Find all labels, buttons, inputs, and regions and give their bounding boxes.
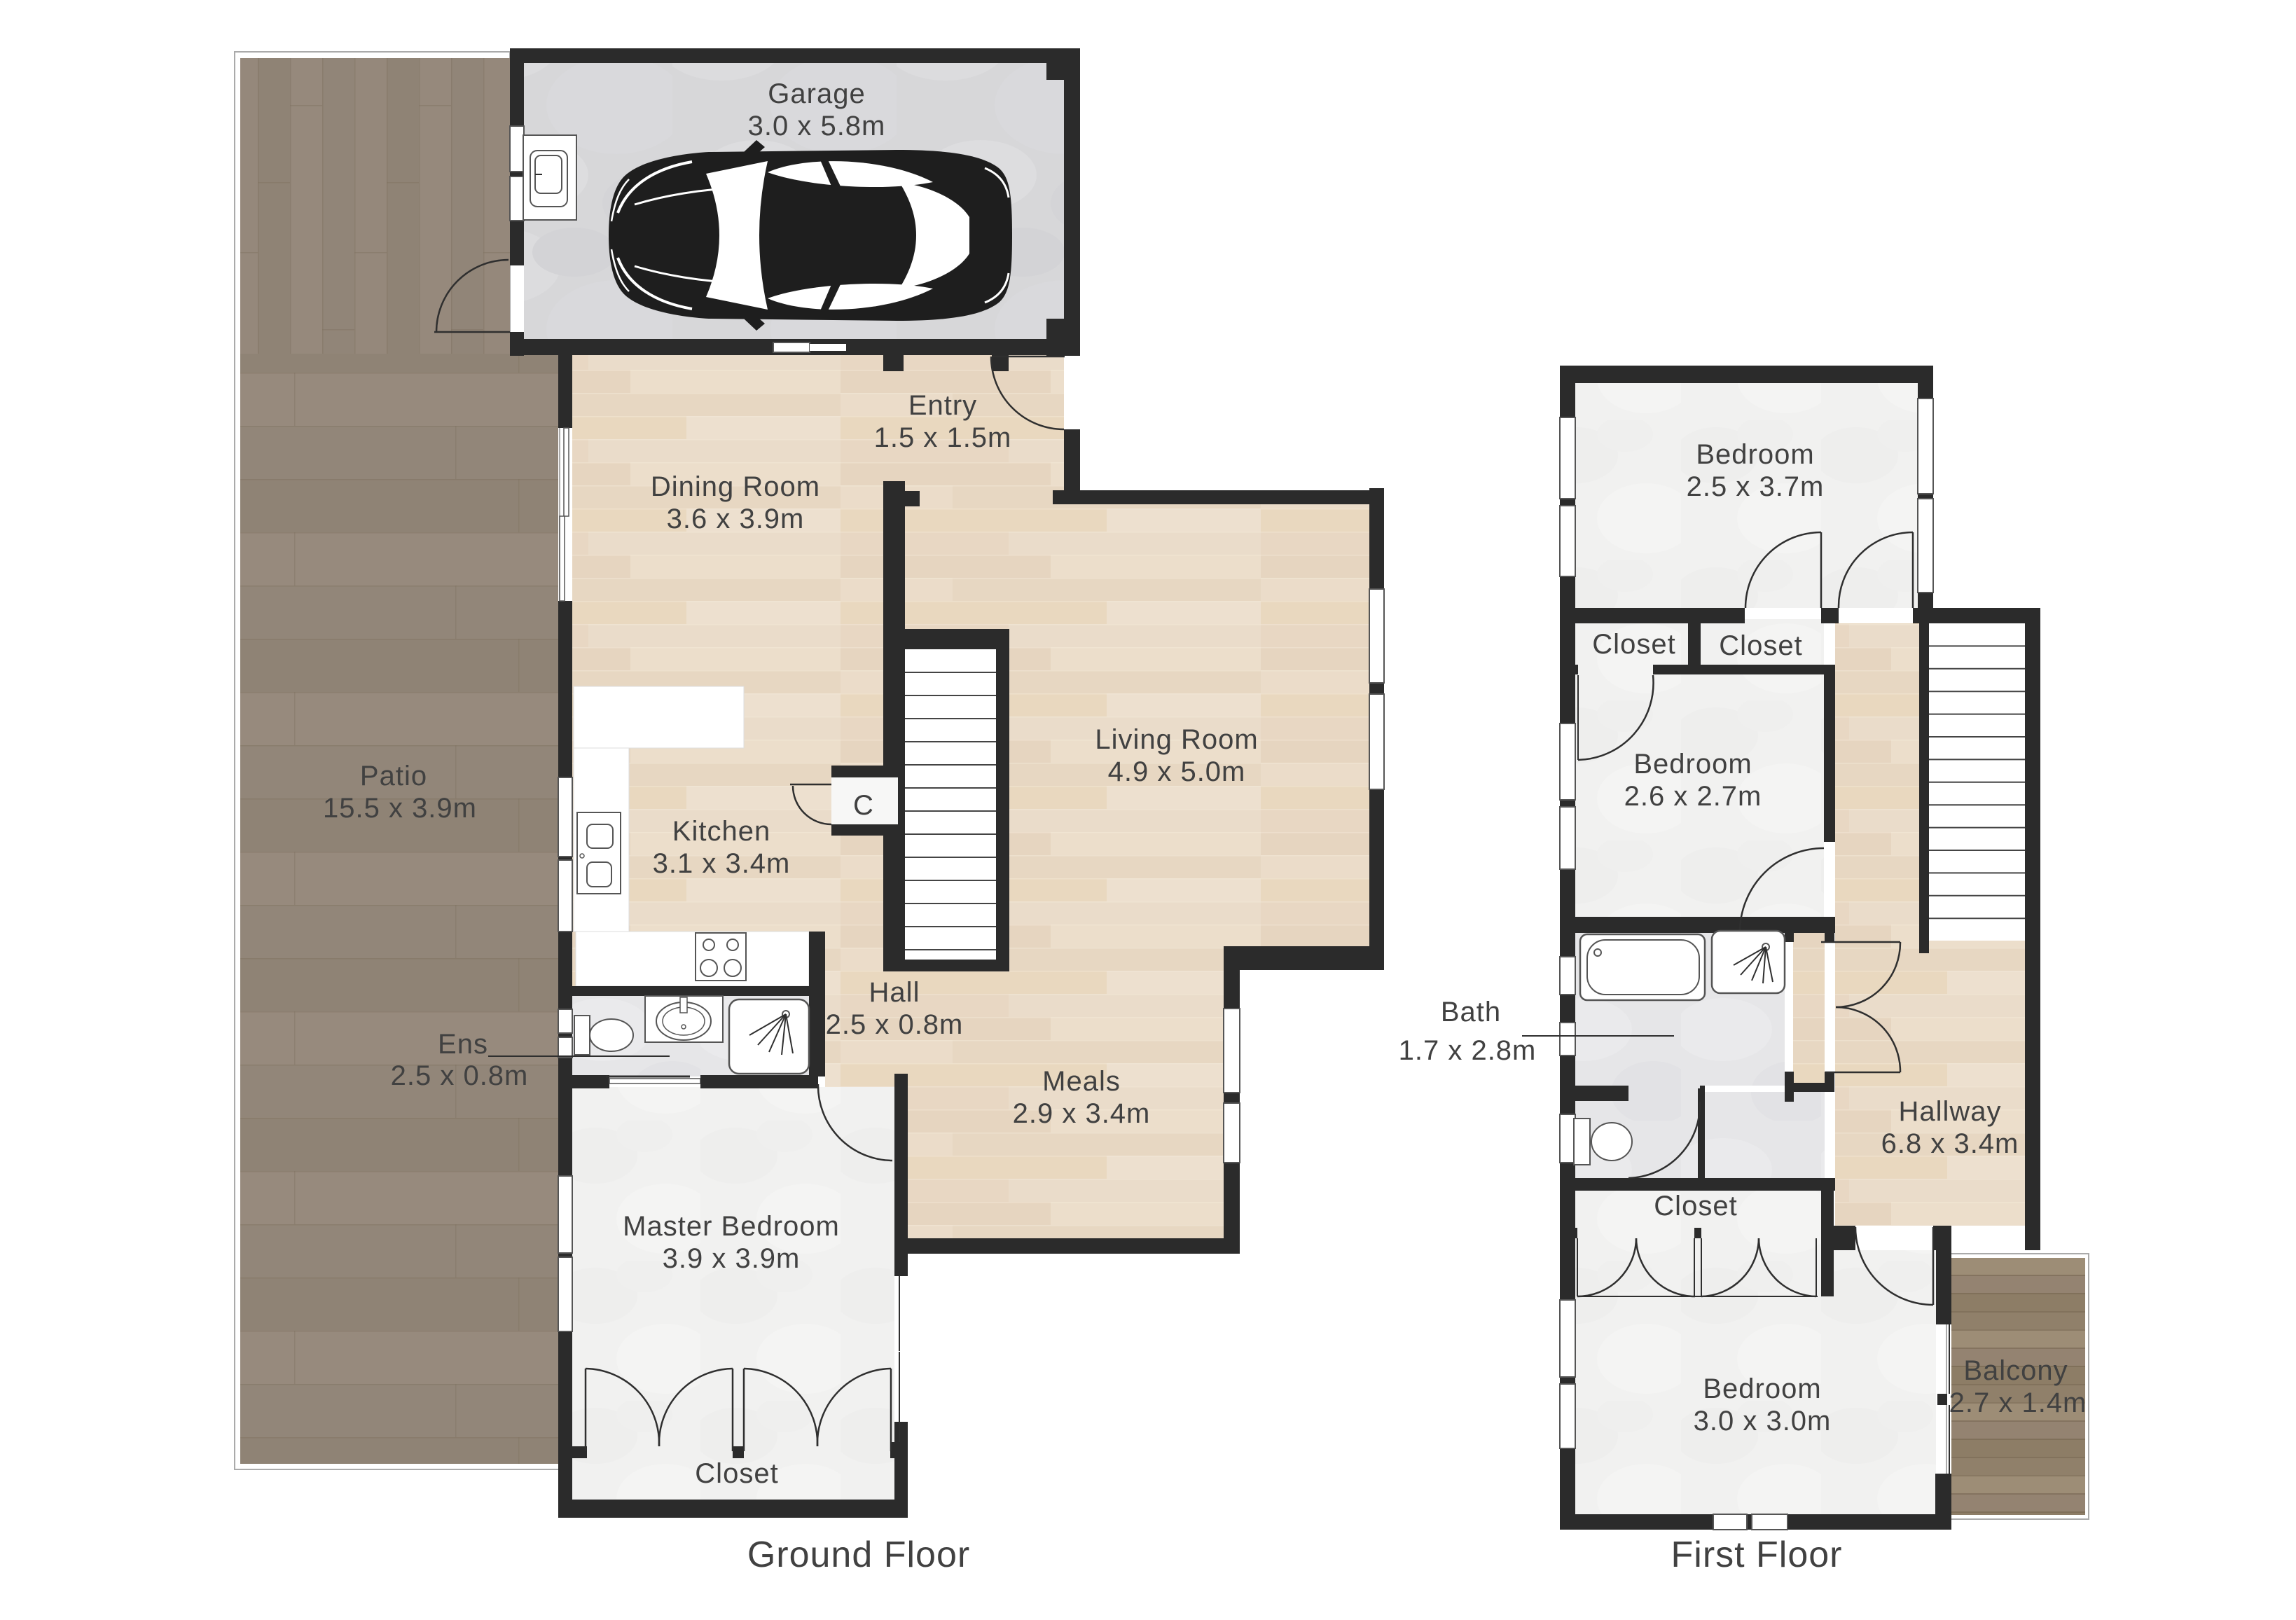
svg-text:Kitchen: Kitchen [672, 816, 770, 847]
svg-text:2.5 x 0.8m: 2.5 x 0.8m [826, 1009, 964, 1040]
svg-text:Closet: Closet [695, 1458, 778, 1489]
svg-text:Ground Floor: Ground Floor [747, 1535, 970, 1575]
svg-text:Closet: Closet [1719, 630, 1802, 661]
svg-text:Bath: Bath [1441, 997, 1501, 1027]
svg-text:Hallway: Hallway [1898, 1096, 2001, 1127]
svg-text:Dining Room: Dining Room [651, 471, 820, 502]
svg-text:Bedroom: Bedroom [1696, 439, 1814, 470]
svg-text:2.9 x 3.4m: 2.9 x 3.4m [1013, 1098, 1151, 1129]
svg-text:Bedroom: Bedroom [1703, 1373, 1821, 1404]
svg-text:1.7 x 2.8m: 1.7 x 2.8m [1399, 1035, 1537, 1066]
svg-text:Balcony: Balcony [1963, 1355, 2068, 1386]
svg-text:6.8 x 3.4m: 6.8 x 3.4m [1881, 1128, 2019, 1159]
svg-text:Ens: Ens [438, 1029, 488, 1060]
svg-text:2.7 x 1.4m: 2.7 x 1.4m [1949, 1387, 2087, 1418]
svg-text:3.1 x 3.4m: 3.1 x 3.4m [653, 848, 791, 879]
svg-text:2.6 x 2.7m: 2.6 x 2.7m [1624, 781, 1762, 812]
svg-text:Patio: Patio [360, 761, 427, 791]
svg-text:Living Room: Living Room [1095, 724, 1258, 755]
svg-text:15.5 x 3.9m: 15.5 x 3.9m [323, 793, 477, 824]
svg-text:1.5 x 1.5m: 1.5 x 1.5m [874, 422, 1012, 453]
svg-text:Closet: Closet [1654, 1191, 1737, 1221]
svg-text:3.6 x 3.9m: 3.6 x 3.9m [667, 504, 805, 534]
svg-text:2.5 x 3.7m: 2.5 x 3.7m [1687, 471, 1825, 502]
svg-text:Master Bedroom: Master Bedroom [623, 1211, 840, 1242]
svg-text:Hall: Hall [869, 977, 920, 1008]
svg-text:Garage: Garage [768, 78, 865, 109]
svg-text:Meals: Meals [1042, 1066, 1121, 1097]
svg-text:Entry: Entry [908, 390, 977, 421]
svg-text:First Floor: First Floor [1671, 1535, 1843, 1575]
svg-text:4.9 x 5.0m: 4.9 x 5.0m [1108, 756, 1246, 787]
svg-text:3.0 x 3.0m: 3.0 x 3.0m [1694, 1406, 1832, 1436]
svg-text:Bedroom: Bedroom [1633, 749, 1752, 780]
svg-text:C: C [853, 790, 874, 821]
svg-text:2.5 x 0.8m: 2.5 x 0.8m [391, 1060, 529, 1091]
svg-text:Closet: Closet [1592, 629, 1675, 660]
svg-text:3.9 x 3.9m: 3.9 x 3.9m [663, 1243, 801, 1274]
svg-text:3.0 x 5.8m: 3.0 x 5.8m [748, 111, 886, 141]
